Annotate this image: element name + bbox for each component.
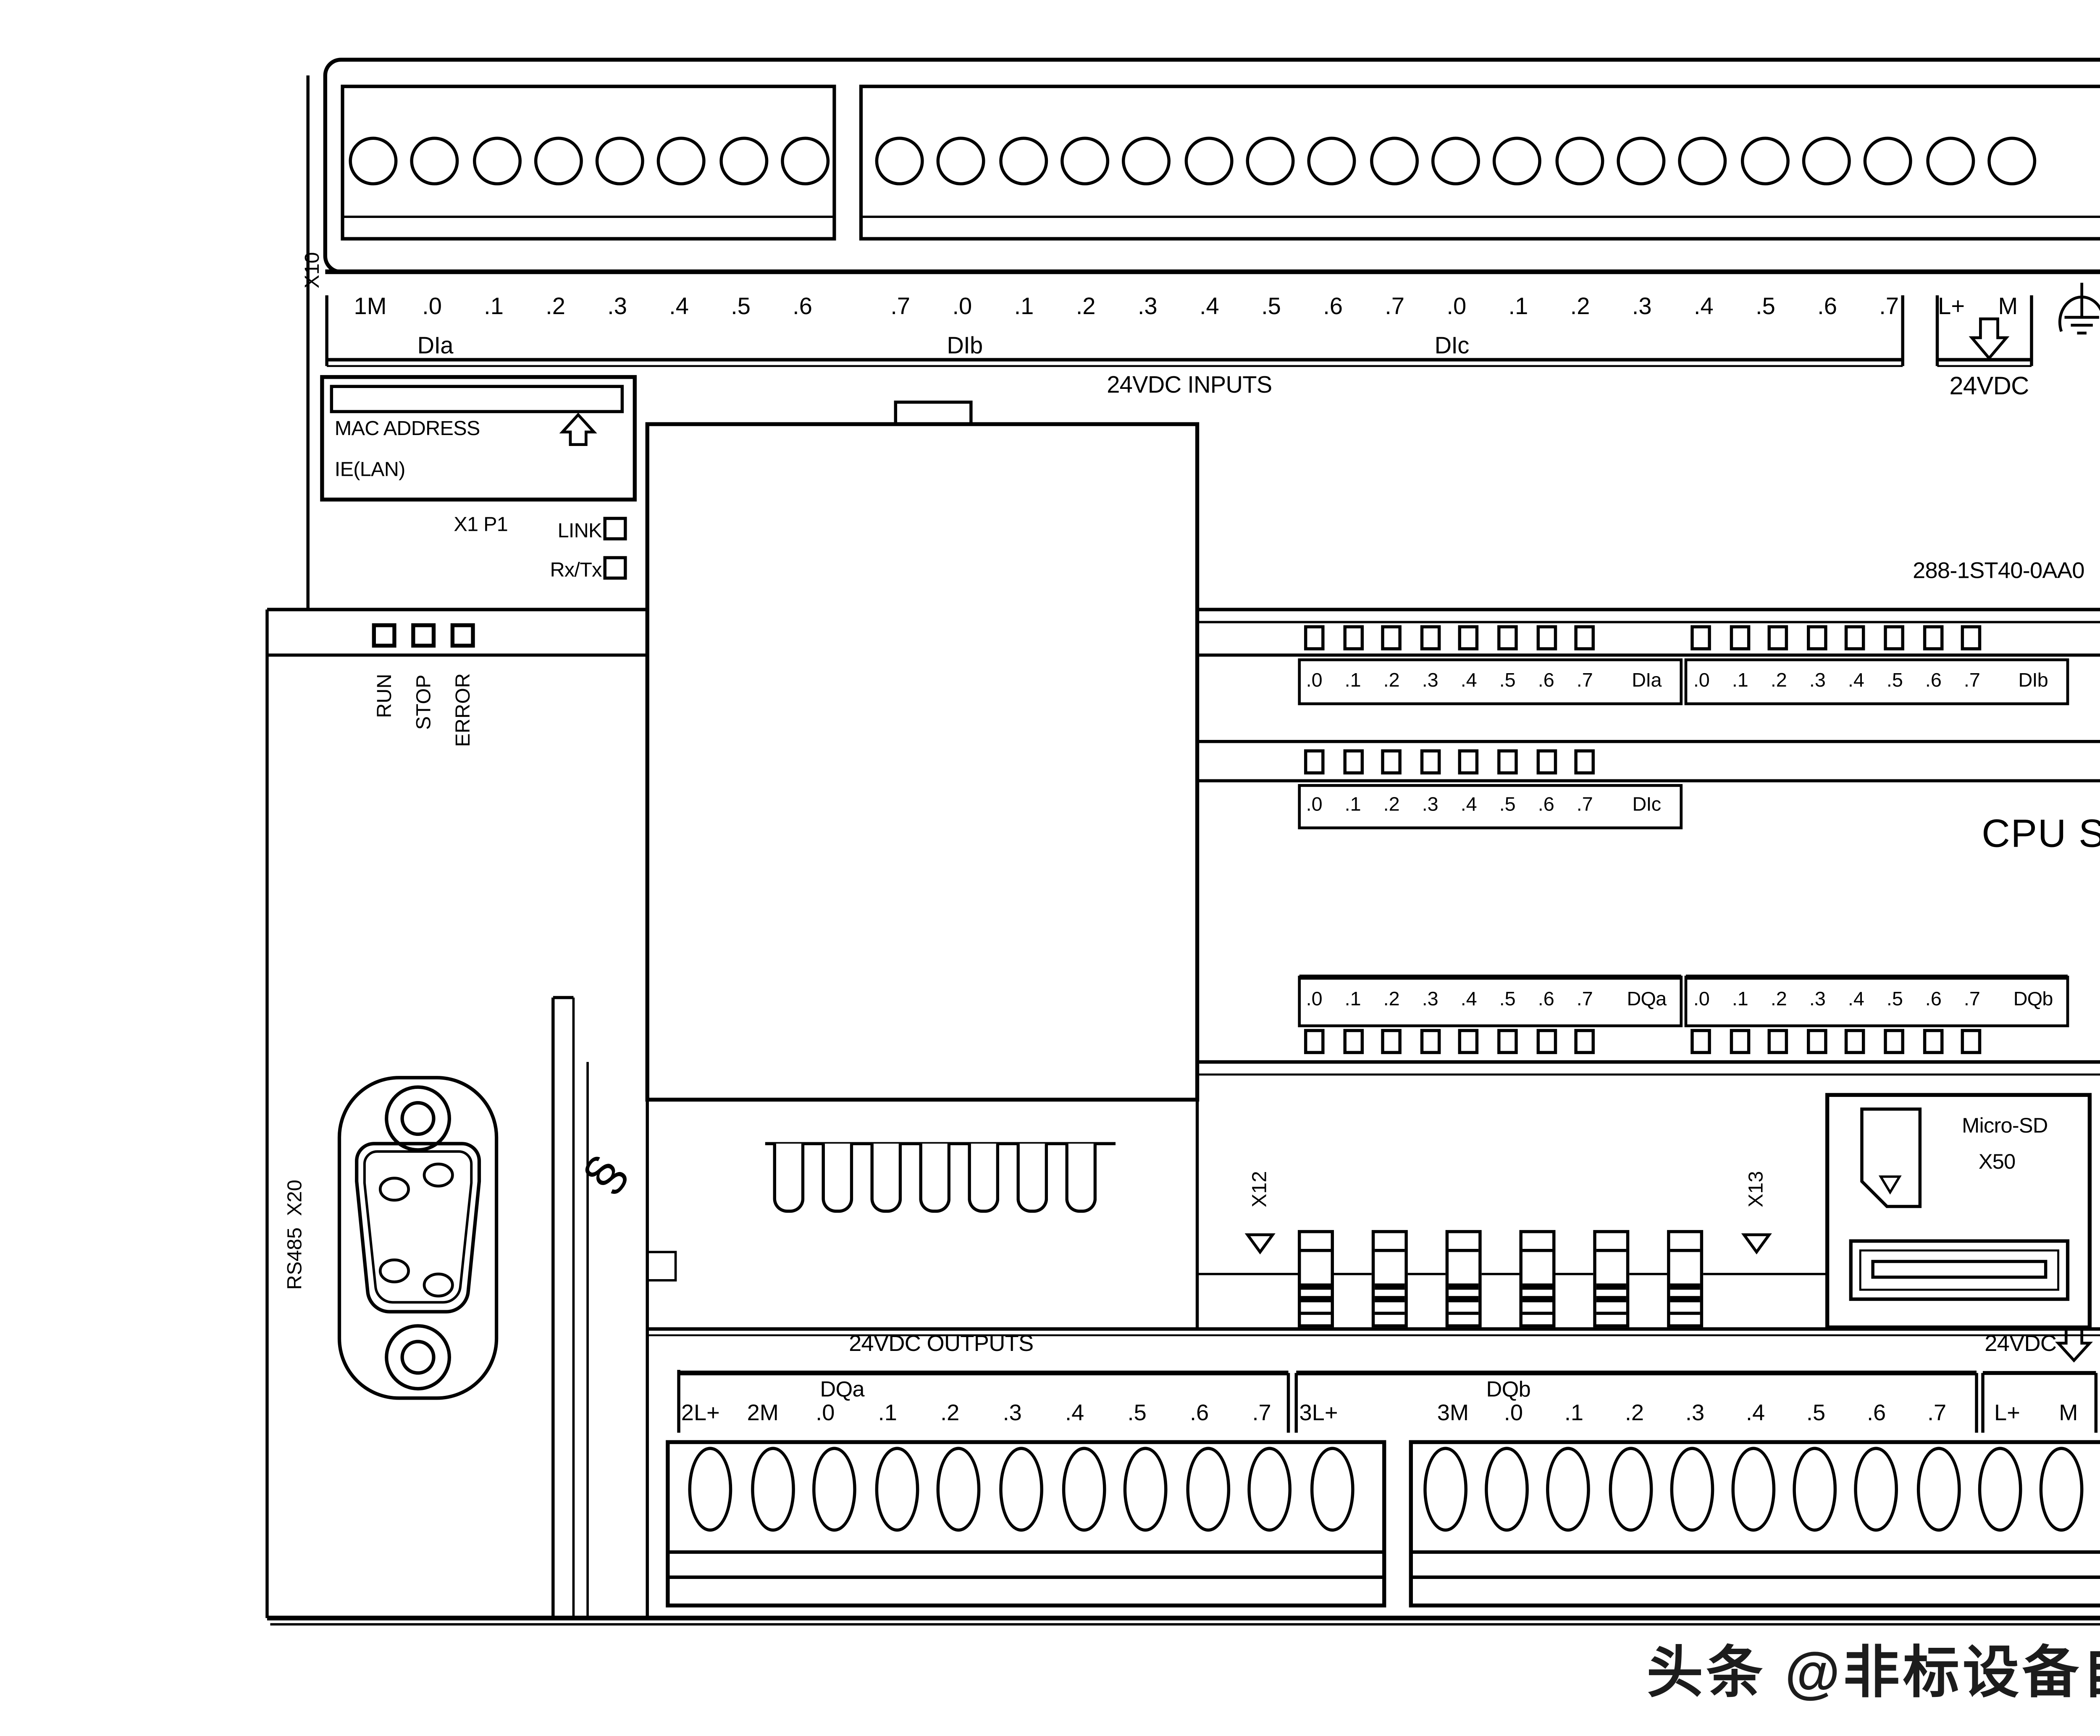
terminal-label: .6 <box>1168 1403 1230 1428</box>
bit-label: .0 <box>1295 990 1333 1010</box>
led-window <box>1420 749 1441 774</box>
led-window <box>1536 749 1557 774</box>
hinged-cover-slots <box>773 1143 1097 1213</box>
dqa-bank-label: DQa <box>1627 990 1666 1010</box>
group-dib-label: DIb <box>947 335 982 359</box>
led-window <box>1497 749 1518 774</box>
bit-label: .1 <box>1333 671 1372 691</box>
screw-terminal <box>813 1447 857 1531</box>
input-supply-labels: L+M <box>1923 295 2036 320</box>
output-terminals-right <box>1423 1447 2083 1531</box>
terminal-label: 2L+ <box>669 1403 732 1428</box>
screw-terminal <box>596 136 645 185</box>
dia-bit-labels: .0.1.2.3.4.5.6.7 <box>1295 671 1604 691</box>
screw-terminal <box>781 136 830 185</box>
screw-terminal <box>1916 1447 1960 1531</box>
bit-label: .0 <box>1295 795 1333 816</box>
screw-terminal <box>1310 1447 1354 1531</box>
dqb-terminal-labels: 3L+3M.0.1.2.3.4.5.6.7 <box>1289 1403 1967 1428</box>
screw-terminal <box>1060 136 1109 185</box>
screw-terminal <box>1608 1447 1652 1531</box>
terminal-label: M <box>2038 1403 2099 1428</box>
screw-terminal <box>472 136 521 185</box>
terminal-label: .3 <box>586 295 648 320</box>
screw-terminal <box>1122 136 1171 185</box>
sd-port-label: X50 <box>1979 1151 2016 1175</box>
terminal-label: .1 <box>1487 295 1549 320</box>
bit-label: .4 <box>1449 671 1488 691</box>
led-window <box>1536 625 1557 650</box>
group-dqb-label: DQb <box>1486 1378 1530 1402</box>
screw-terminal <box>875 136 924 185</box>
led-window <box>1768 625 1788 650</box>
bit-label: .3 <box>1798 671 1837 691</box>
led-row-dqb <box>1690 1029 1982 1054</box>
diagram-stage: X10 X11 1M.0.1.2.3.4.5.6 .7.0.1.2.3.4.5.… <box>0 0 2100 1736</box>
terminal-label: 2M <box>732 1403 794 1428</box>
terminal-label: .4 <box>1673 295 1735 320</box>
screw-terminal <box>1423 1447 1467 1531</box>
screw-terminal <box>937 136 986 185</box>
terminal-label: 3L+ <box>1289 1403 1349 1428</box>
cover-slot <box>919 1143 950 1213</box>
terminal-label: .5 <box>1106 1403 1168 1428</box>
screw-terminal <box>688 1447 732 1531</box>
screw-terminal <box>658 136 706 185</box>
led-window <box>1922 1029 1943 1054</box>
terminal-label: .7 <box>869 295 931 320</box>
screw-terminal <box>1431 136 1480 185</box>
led-window <box>1806 1029 1827 1054</box>
led-window <box>1690 625 1711 650</box>
dic-bit-labels: .0.1.2.3.4.5.6.7 <box>1295 795 1604 816</box>
screw-terminal <box>1246 136 1294 185</box>
screw-terminal <box>1370 136 1418 185</box>
led-window <box>1381 1029 1402 1054</box>
screw-terminal <box>751 1447 795 1531</box>
screw-terminal <box>410 136 459 185</box>
dib-bit-labels: .0.1.2.3.4.5.6.7 <box>1682 671 1991 691</box>
output-supply-arrow-icon <box>2058 1329 2090 1361</box>
terminal-label: .5 <box>1240 295 1302 320</box>
inputs-caption: 24VDC INPUTS <box>1107 374 1272 399</box>
bit-label: .3 <box>1798 990 1837 1010</box>
screw-terminal <box>1186 1447 1230 1531</box>
bit-label: .7 <box>1953 990 1991 1010</box>
screw-terminal <box>1864 136 1913 185</box>
bit-label: .5 <box>1875 990 1914 1010</box>
terminal-label: .1 <box>856 1403 919 1428</box>
bit-label: .4 <box>1449 795 1488 816</box>
bit-label: .1 <box>1333 795 1372 816</box>
screw-terminal <box>1493 136 1542 185</box>
bit-label: .7 <box>1565 671 1604 691</box>
input-terminal-labels-left: 1M.0.1.2.3.4.5.6 <box>339 295 833 320</box>
terminal-label: .4 <box>1179 295 1240 320</box>
terminal-label: .0 <box>1483 1403 1543 1428</box>
cover-slot <box>773 1143 805 1213</box>
led-window <box>1729 625 1750 650</box>
terminal-label: .6 <box>1302 295 1364 320</box>
terminal-label: .7 <box>1907 1403 1967 1428</box>
led-window <box>1536 1029 1557 1054</box>
bit-label: .6 <box>1527 671 1565 691</box>
connector-x13-label: X13 <box>1746 1171 1768 1208</box>
screw-terminal <box>349 136 397 185</box>
link-led-label: LINK <box>518 520 601 542</box>
terminal-label: .4 <box>1725 1403 1786 1428</box>
led-window <box>1961 1029 1982 1054</box>
rxtx-led <box>605 558 625 578</box>
terminal-label: .7 <box>1364 295 1425 320</box>
input-supply-caption: 24VDC <box>1949 375 2029 402</box>
screw-terminal <box>999 1447 1043 1531</box>
led-window <box>1497 625 1518 650</box>
bit-label: .5 <box>1488 671 1527 691</box>
link-led <box>605 518 625 539</box>
bit-label: .4 <box>1837 671 1875 691</box>
led-window <box>1806 625 1827 650</box>
screw-terminal <box>1546 1447 1591 1531</box>
terminal-label: .7 <box>1231 1403 1293 1428</box>
screw-terminal <box>534 136 583 185</box>
terminal-label: M <box>1980 295 2037 320</box>
bit-label: .2 <box>1372 990 1411 1010</box>
bit-label: .2 <box>1759 671 1798 691</box>
cover-slot <box>822 1143 853 1213</box>
bit-label: .7 <box>1565 990 1604 1010</box>
terminal-label: .3 <box>1664 1403 1725 1428</box>
up-arrow-icon <box>562 415 594 445</box>
led-row-dia <box>1304 625 1595 650</box>
bit-label: .6 <box>1914 671 1953 691</box>
bit-label: .2 <box>1372 671 1411 691</box>
screw-hole-top <box>386 1087 449 1150</box>
terminal-label: .4 <box>648 295 710 320</box>
cpu-name: CPU ST40 <box>1982 816 2100 855</box>
led-window <box>1575 749 1595 774</box>
outputs-caption: 24VDC OUTPUTS <box>849 1334 1033 1359</box>
bit-label: .5 <box>1875 671 1914 691</box>
bit-label: .5 <box>1488 795 1527 816</box>
led-window <box>1343 625 1363 650</box>
expansion-cover <box>647 402 1197 1618</box>
screw-terminal <box>2039 1447 2083 1531</box>
screw-hole-bottom <box>386 1326 449 1389</box>
terminal-label: L+ <box>1923 295 1980 320</box>
terminal-label: .3 <box>1117 295 1179 320</box>
cover-slot <box>870 1143 902 1213</box>
screw-terminal <box>1926 136 1974 185</box>
led-window <box>1381 625 1402 650</box>
input-terminals-right <box>875 136 2036 185</box>
terminal-label: .4 <box>1043 1403 1105 1428</box>
bus-pin <box>1667 1230 1703 1327</box>
led-window <box>1343 749 1363 774</box>
input-terminals-left <box>349 136 829 185</box>
led-row-dqa <box>1304 1029 1595 1054</box>
bus-pin <box>1593 1230 1629 1327</box>
cover-slot <box>968 1143 999 1213</box>
terminal-label: .1 <box>993 295 1055 320</box>
terminal-label: .0 <box>1425 295 1487 320</box>
terminal-label: .2 <box>525 295 586 320</box>
screw-terminal <box>1248 1447 1292 1531</box>
screw-terminal <box>999 136 1047 185</box>
screw-terminal <box>1740 136 1789 185</box>
bit-label: .4 <box>1837 990 1875 1010</box>
led-window <box>1961 625 1982 650</box>
led-window <box>1420 625 1441 650</box>
group-dqa-label: DQa <box>820 1378 864 1402</box>
bit-label: .3 <box>1411 671 1449 691</box>
led-bank-frames <box>1197 655 2100 1075</box>
bit-label: .5 <box>1488 990 1527 1010</box>
dqa-terminal-labels: 2L+2M.0.1.2.3.4.5.6.7 <box>669 1403 1293 1428</box>
dib-bank-label: DIb <box>2018 671 2048 691</box>
sd-card-triangle-icon <box>1881 1177 1900 1192</box>
bit-label: .2 <box>1372 795 1411 816</box>
led-window <box>1304 749 1325 774</box>
bit-label: .2 <box>1759 990 1798 1010</box>
dqb-bit-labels: .0.1.2.3.4.5.6.7 <box>1682 990 1991 1010</box>
connector-x12-label: X12 <box>1249 1171 1271 1208</box>
terminal-label: .5 <box>1735 295 1796 320</box>
screw-terminal <box>1308 136 1357 185</box>
terminal-label: 3M <box>1423 1403 1483 1428</box>
terminal-label: 1M <box>339 295 401 320</box>
led-window <box>1845 625 1866 650</box>
input-supply-arrow-icon <box>1972 319 2006 358</box>
led-window <box>1459 749 1479 774</box>
status-led-windows <box>267 625 647 655</box>
screw-terminal <box>1184 136 1233 185</box>
led-window <box>1690 1029 1711 1054</box>
terminal-label: L+ <box>1977 1403 2038 1428</box>
led-window <box>1922 625 1943 650</box>
terminal-label: .3 <box>1611 295 1673 320</box>
led-window <box>1768 1029 1788 1054</box>
bit-label: .6 <box>1527 795 1565 816</box>
terminal-label: .6 <box>772 295 833 320</box>
screw-terminal <box>875 1447 919 1531</box>
group-dia-label: DIa <box>417 335 453 359</box>
led-window <box>1884 625 1904 650</box>
pin-hole <box>380 1178 408 1200</box>
bit-label: .7 <box>1953 671 1991 691</box>
mac-address-label: MAC ADDRESS <box>335 418 480 440</box>
screw-terminal <box>1987 136 2036 185</box>
dic-bank-label: DIc <box>1633 795 1661 816</box>
left-case-steps <box>553 997 676 1618</box>
led-window <box>1459 1029 1479 1054</box>
screw-terminal <box>1123 1447 1168 1531</box>
screw-terminal <box>1793 1447 1837 1531</box>
x13-triangle-icon <box>1744 1235 1769 1252</box>
connector-x10-label: X10 <box>302 252 324 288</box>
led-window <box>1884 1029 1904 1054</box>
terminal-label: .6 <box>1846 1403 1907 1428</box>
led-window <box>1575 1029 1595 1054</box>
led-window <box>1381 749 1402 774</box>
screw-terminal <box>1555 136 1604 185</box>
screw-terminal <box>1061 1447 1105 1531</box>
terminal-label: .1 <box>463 295 525 320</box>
dia-bank-label: DIa <box>1632 671 1662 691</box>
led-window <box>1575 625 1595 650</box>
bit-label: .6 <box>1914 990 1953 1010</box>
bus-pin <box>1446 1230 1482 1327</box>
run-led-label: RUN <box>374 674 396 718</box>
screw-terminal <box>937 1447 981 1531</box>
port-x1p1-label: X1 P1 <box>454 514 508 536</box>
bus-pin <box>1519 1230 1555 1327</box>
sd-name-label: Micro-SD <box>1962 1115 2047 1139</box>
cover-slot <box>1065 1143 1097 1213</box>
screw-terminal <box>719 136 768 185</box>
screw-terminal <box>1854 1447 1898 1531</box>
led-window <box>1845 1029 1866 1054</box>
dqa-bit-labels: .0.1.2.3.4.5.6.7 <box>1295 990 1604 1010</box>
group-dic-label: DIc <box>1435 335 1469 359</box>
led-window <box>1459 625 1479 650</box>
pin-hole <box>424 1164 452 1186</box>
terminal-label: .7 <box>1858 295 1920 320</box>
article-number: 288-1ST40-0AA0 <box>1913 561 2084 586</box>
rs485-x20-label: RS485 X20 <box>284 1180 307 1290</box>
bit-label: .3 <box>1411 990 1449 1010</box>
terminal-label: .1 <box>1543 1403 1604 1428</box>
terminal-label: .0 <box>794 1403 856 1428</box>
pin-hole <box>380 1260 408 1282</box>
dqb-bank-label: DQb <box>2013 990 2053 1010</box>
input-terminal-labels-right: .7.0.1.2.3.4.5.6.7.0.1.2.3.4.5.6.7 <box>869 295 1920 320</box>
expansion-bus-pins <box>1298 1230 1703 1327</box>
screw-terminal <box>1678 136 1727 185</box>
screw-terminal <box>1978 1447 2022 1531</box>
led-row-dib <box>1690 625 1982 650</box>
led-window <box>1497 1029 1518 1054</box>
cover-slot <box>1016 1143 1048 1213</box>
bit-label: .7 <box>1565 795 1604 816</box>
bit-label: .3 <box>1411 795 1449 816</box>
bit-label: .6 <box>1527 990 1565 1010</box>
rxtx-led-label: Rx/Tx <box>518 559 601 582</box>
led-window <box>1304 1029 1325 1054</box>
plc-terminal-diagram: X10 X11 1M.0.1.2.3.4.5.6 .7.0.1.2.3.4.5.… <box>0 0 2100 1736</box>
output-supply-caption: 24VDC <box>1984 1334 2056 1359</box>
terminal-label: .2 <box>1549 295 1611 320</box>
bit-label: .4 <box>1449 990 1488 1010</box>
terminal-label: .2 <box>1055 295 1117 320</box>
screw-terminal <box>1802 136 1851 185</box>
watermark: 头条 @非标设备自动化设计 <box>1646 1628 2100 1710</box>
bus-pin <box>1372 1230 1408 1327</box>
terminal-label: .0 <box>931 295 993 320</box>
led-window <box>1304 625 1325 650</box>
terminal-label: .3 <box>981 1403 1043 1428</box>
terminal-label: .2 <box>919 1403 981 1428</box>
screw-terminal <box>1485 1447 1529 1531</box>
terminal-label: .0 <box>401 295 463 320</box>
error-led-label: ERROR <box>452 673 475 747</box>
bit-label: .0 <box>1682 671 1721 691</box>
screw-terminal <box>1670 1447 1714 1531</box>
led-window <box>1729 1029 1750 1054</box>
bit-label: .1 <box>1333 990 1372 1010</box>
terminal-label: .5 <box>1786 1403 1846 1428</box>
led-window <box>1420 1029 1441 1054</box>
bus-pin <box>1298 1230 1334 1327</box>
terminal-label: .6 <box>1796 295 1858 320</box>
bit-label: .1 <box>1721 990 1759 1010</box>
led-window <box>1343 1029 1363 1054</box>
screw-terminal <box>1731 1447 1775 1531</box>
output-terminals-left <box>688 1447 1354 1531</box>
bit-label: .0 <box>1682 990 1721 1010</box>
ie-lan-label: IE(LAN) <box>335 459 405 481</box>
bit-label: .1 <box>1721 671 1759 691</box>
terminal-label: .2 <box>1604 1403 1664 1428</box>
sd-slot-box <box>1827 1095 2090 1327</box>
output-supply-labels: L+M <box>1977 1403 2099 1428</box>
led-row-dic <box>1304 749 1595 774</box>
ground-icon <box>2060 283 2100 333</box>
pin-hole <box>424 1274 452 1296</box>
terminal-label: .5 <box>710 295 772 320</box>
screw-terminal <box>1617 136 1665 185</box>
rs485-db9-connector <box>339 1078 496 1398</box>
stop-led-label: STOP <box>413 674 435 730</box>
x12-triangle-icon <box>1247 1235 1273 1252</box>
bit-label: .0 <box>1295 671 1333 691</box>
